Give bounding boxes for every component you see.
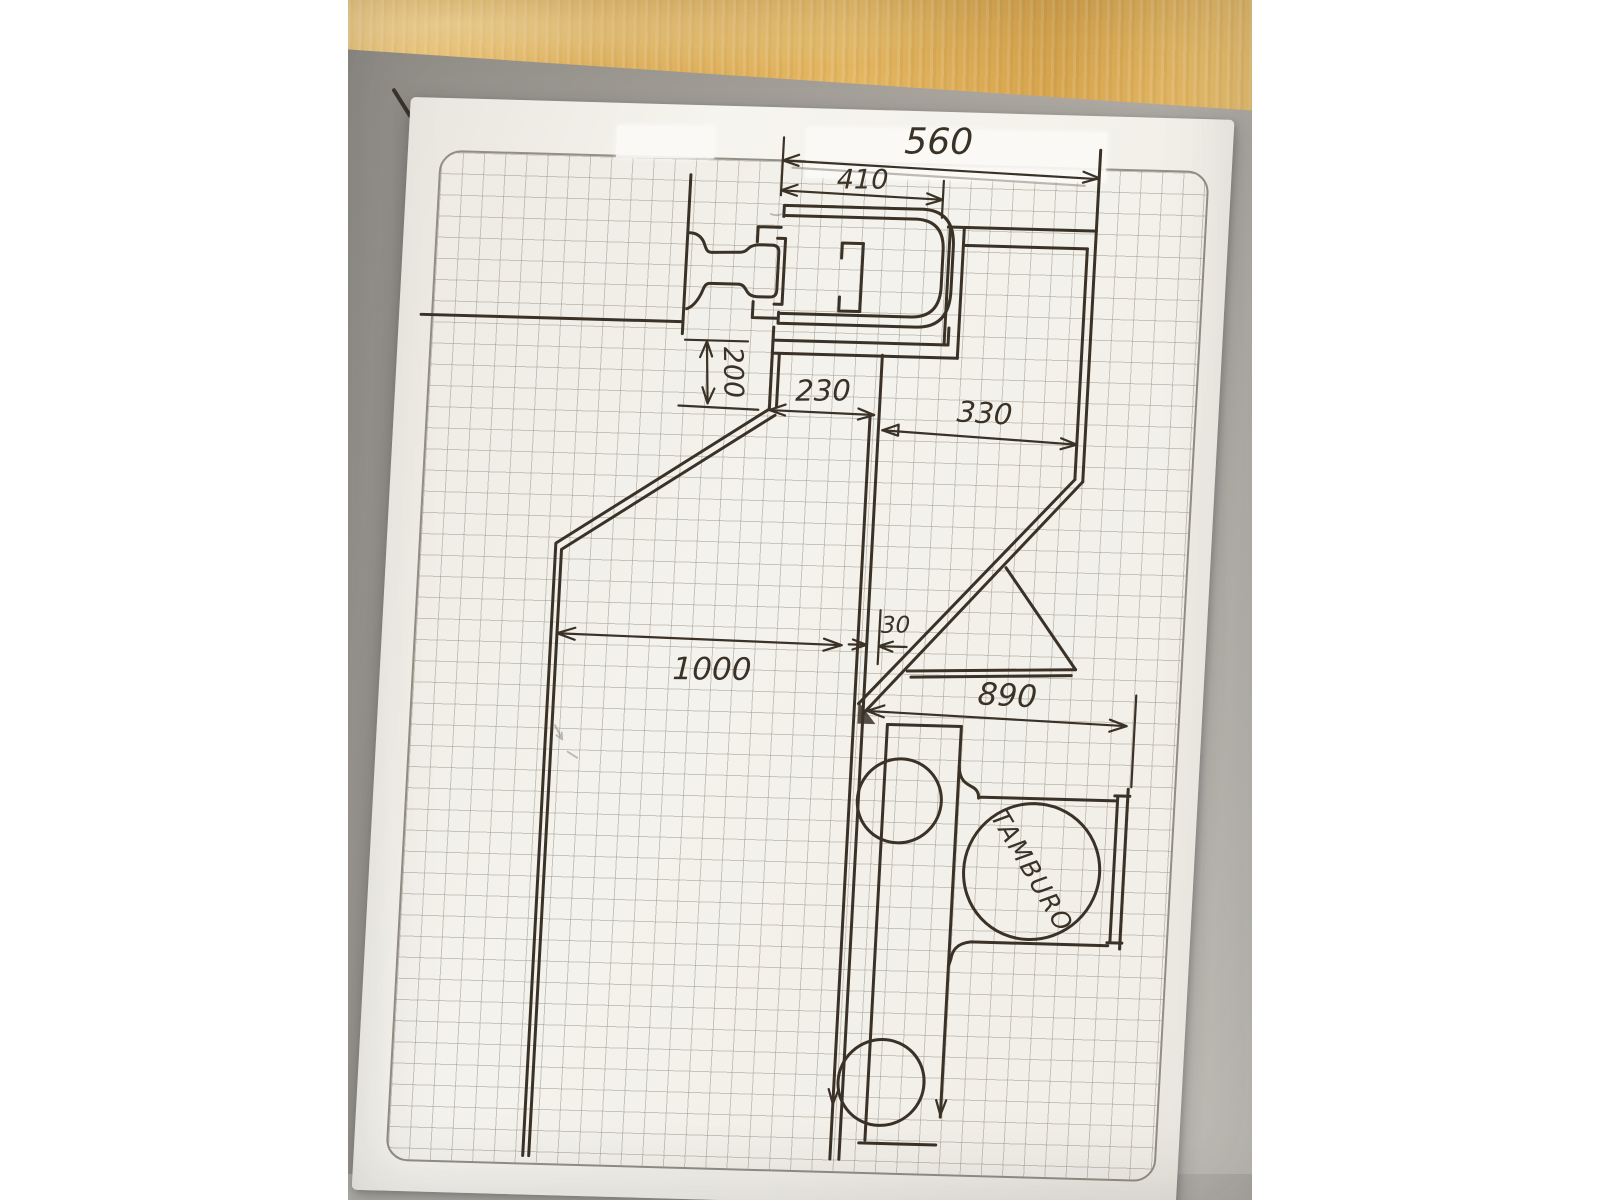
roller-circle-lower	[836, 1038, 927, 1126]
dim-890: 890	[863, 673, 1137, 787]
dim-30-label: 30	[881, 613, 911, 639]
wall-section	[420, 167, 690, 333]
dim-200-label: 200	[717, 346, 749, 399]
track-channel-profile	[778, 205, 955, 328]
dim-1000-label: 1000	[672, 651, 752, 688]
dim-410-label: 410	[836, 165, 888, 196]
dim-200: 200	[682, 340, 752, 405]
dim-890-label: 890	[976, 676, 1038, 715]
photo-of-sketch: TAMBURO 560 410	[348, 0, 1252, 1200]
dim-230-label: 230	[795, 373, 851, 407]
panel-slot-profile	[752, 227, 786, 319]
screenshot-root: { "scene": { "type": "photograph of a ha…	[0, 0, 1600, 1200]
tilted-paper-group: TAMBURO 560 410	[348, 0, 1252, 1200]
track-bottom-plate	[772, 323, 959, 358]
mushroom-anchor-profile	[686, 233, 780, 311]
dim-560: 560	[781, 117, 1102, 204]
diagonal-panel	[857, 474, 1085, 730]
sketch-svg: TAMBURO 560 410	[348, 0, 1252, 1200]
dim-560-label: 560	[904, 121, 974, 163]
dim-330: 330	[882, 392, 1080, 449]
dim-330-label: 330	[956, 394, 1014, 431]
left-sloped-wall	[523, 347, 780, 1161]
roller-circle-upper	[855, 758, 944, 844]
dim-1000: 1000	[554, 627, 842, 692]
drum-housing: TAMBURO	[835, 724, 1134, 1150]
shutter-box-outline	[935, 146, 1101, 482]
central-partition-wall	[825, 355, 883, 1159]
tamburo-label: TAMBURO	[985, 805, 1079, 938]
